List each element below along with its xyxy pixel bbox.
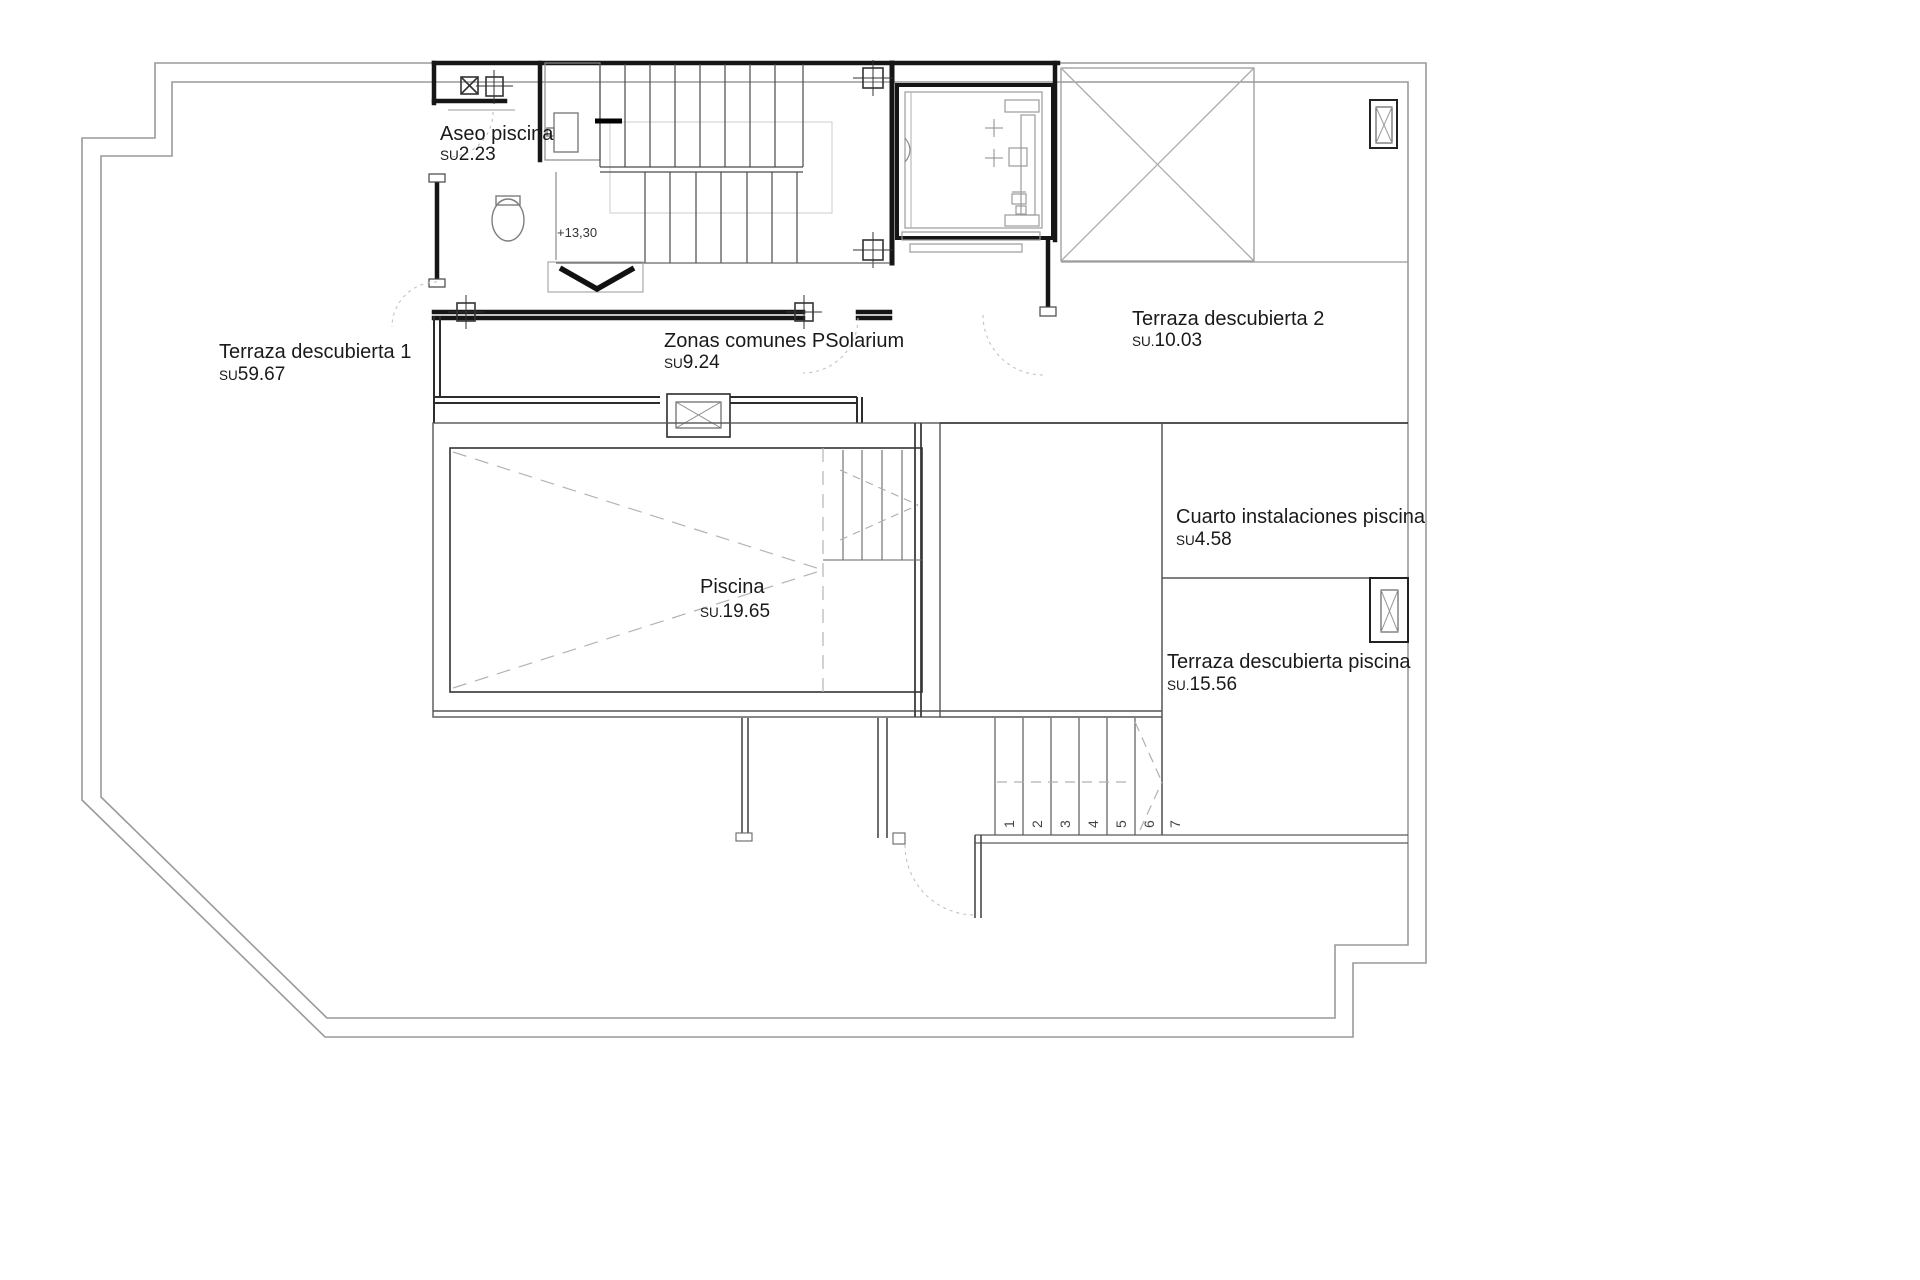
svg-text:SU.10.03: SU.10.03 — [1132, 330, 1202, 351]
elevator-machinery-icon — [1009, 148, 1027, 214]
column-cross-icon — [853, 60, 893, 96]
svg-text:SU4.58: SU4.58 — [1176, 529, 1232, 550]
level-mark: +13,30 — [557, 225, 597, 240]
door-jamb-cap — [893, 833, 905, 844]
pillar-x-marker-icon — [1370, 100, 1397, 148]
step-number: 2 — [1029, 820, 1045, 828]
pool-steps-arrow-icon — [840, 470, 918, 540]
pool-basin — [450, 448, 922, 692]
stair-niche — [545, 63, 600, 160]
label-cuarto-instalaciones: Cuarto instalaciones piscina SU4.58 — [1176, 506, 1426, 550]
machinery-cross-marks — [985, 119, 1003, 167]
vestibule-door-arc — [392, 282, 437, 327]
room-name: Zonas comunes PSolarium — [664, 330, 904, 352]
step-number: 1 — [1001, 820, 1017, 828]
core-walls — [434, 63, 1058, 318]
skylight-void — [1061, 68, 1408, 262]
room-name: Terraza descubierta 1 — [219, 341, 411, 363]
pillar-x-marker-icon — [1370, 578, 1408, 642]
door-arcs — [392, 282, 1043, 915]
elevator-door-icon — [905, 138, 910, 162]
pool-steps — [823, 450, 922, 560]
lower-landing — [736, 718, 981, 918]
pool — [450, 448, 922, 692]
pool-slope-lines — [453, 448, 823, 692]
toilet-cistern-icon — [496, 196, 520, 205]
label-zonas-comunes: Zonas comunes PSolarium SU9.24 — [664, 330, 904, 373]
column-cross-icon — [448, 295, 484, 329]
stair-step-numbers: 1 2 3 4 5 6 7 — [1001, 820, 1183, 828]
chevron-down-icon — [560, 268, 634, 289]
room-name: Cuarto instalaciones piscina — [1176, 506, 1426, 528]
step-number: 3 — [1057, 820, 1073, 828]
boundary-inner — [101, 82, 1408, 1018]
washbasin-icon — [554, 113, 578, 152]
room-name: Piscina — [700, 576, 765, 598]
beam-x-marker-icon — [667, 394, 730, 437]
label-terraza-descubierta-1: Terraza descubierta 1 SU59.67 — [219, 341, 411, 385]
stair-direction-marker — [548, 262, 643, 292]
exterior-stair-treads — [995, 718, 1162, 835]
label-terraza-descubierta-2: Terraza descubierta 2 SU.10.03 — [1132, 308, 1324, 351]
step-number: 6 — [1141, 820, 1157, 828]
svg-text:SU9.24: SU9.24 — [664, 352, 720, 373]
column-cross-icon — [786, 295, 822, 329]
core-stair — [556, 64, 890, 263]
terrace-boundary — [82, 63, 1426, 1037]
step-number: 7 — [1167, 820, 1183, 828]
boundary-outer — [82, 63, 1426, 1037]
svg-text:SU59.67: SU59.67 — [219, 364, 285, 385]
floor-plan-canvas: Aseo piscina SU2.23 Terraza descubierta … — [0, 0, 1920, 1280]
room-name: Terraza descubierta 2 — [1132, 308, 1324, 330]
stair-lower-treads — [645, 172, 797, 263]
svg-text:SU2.23: SU2.23 — [440, 144, 496, 165]
lower-exit-door-arc — [905, 845, 975, 915]
column-x-icon — [461, 77, 478, 94]
label-aseo-piscina: Aseo piscina SU2.23 — [440, 123, 554, 165]
room-name: Terraza descubierta piscina — [1167, 651, 1411, 673]
right-rooms-walls — [1162, 423, 1370, 835]
room-name: Aseo piscina — [440, 123, 554, 145]
svg-text:SU.15.56: SU.15.56 — [1167, 674, 1237, 695]
elevator-cabin — [902, 92, 1042, 252]
step-number: 5 — [1113, 820, 1129, 828]
step-number: 4 — [1085, 820, 1101, 828]
stair-upper-treads — [600, 64, 803, 167]
svg-text:SU.19.65: SU.19.65 — [700, 601, 770, 622]
terraza2-door-arc — [983, 315, 1043, 375]
wall-caps — [429, 174, 1056, 316]
label-terraza-piscina: Terraza descubierta piscina SU.15.56 — [1167, 651, 1411, 695]
label-piscina: Piscina SU.19.65 — [700, 576, 770, 622]
